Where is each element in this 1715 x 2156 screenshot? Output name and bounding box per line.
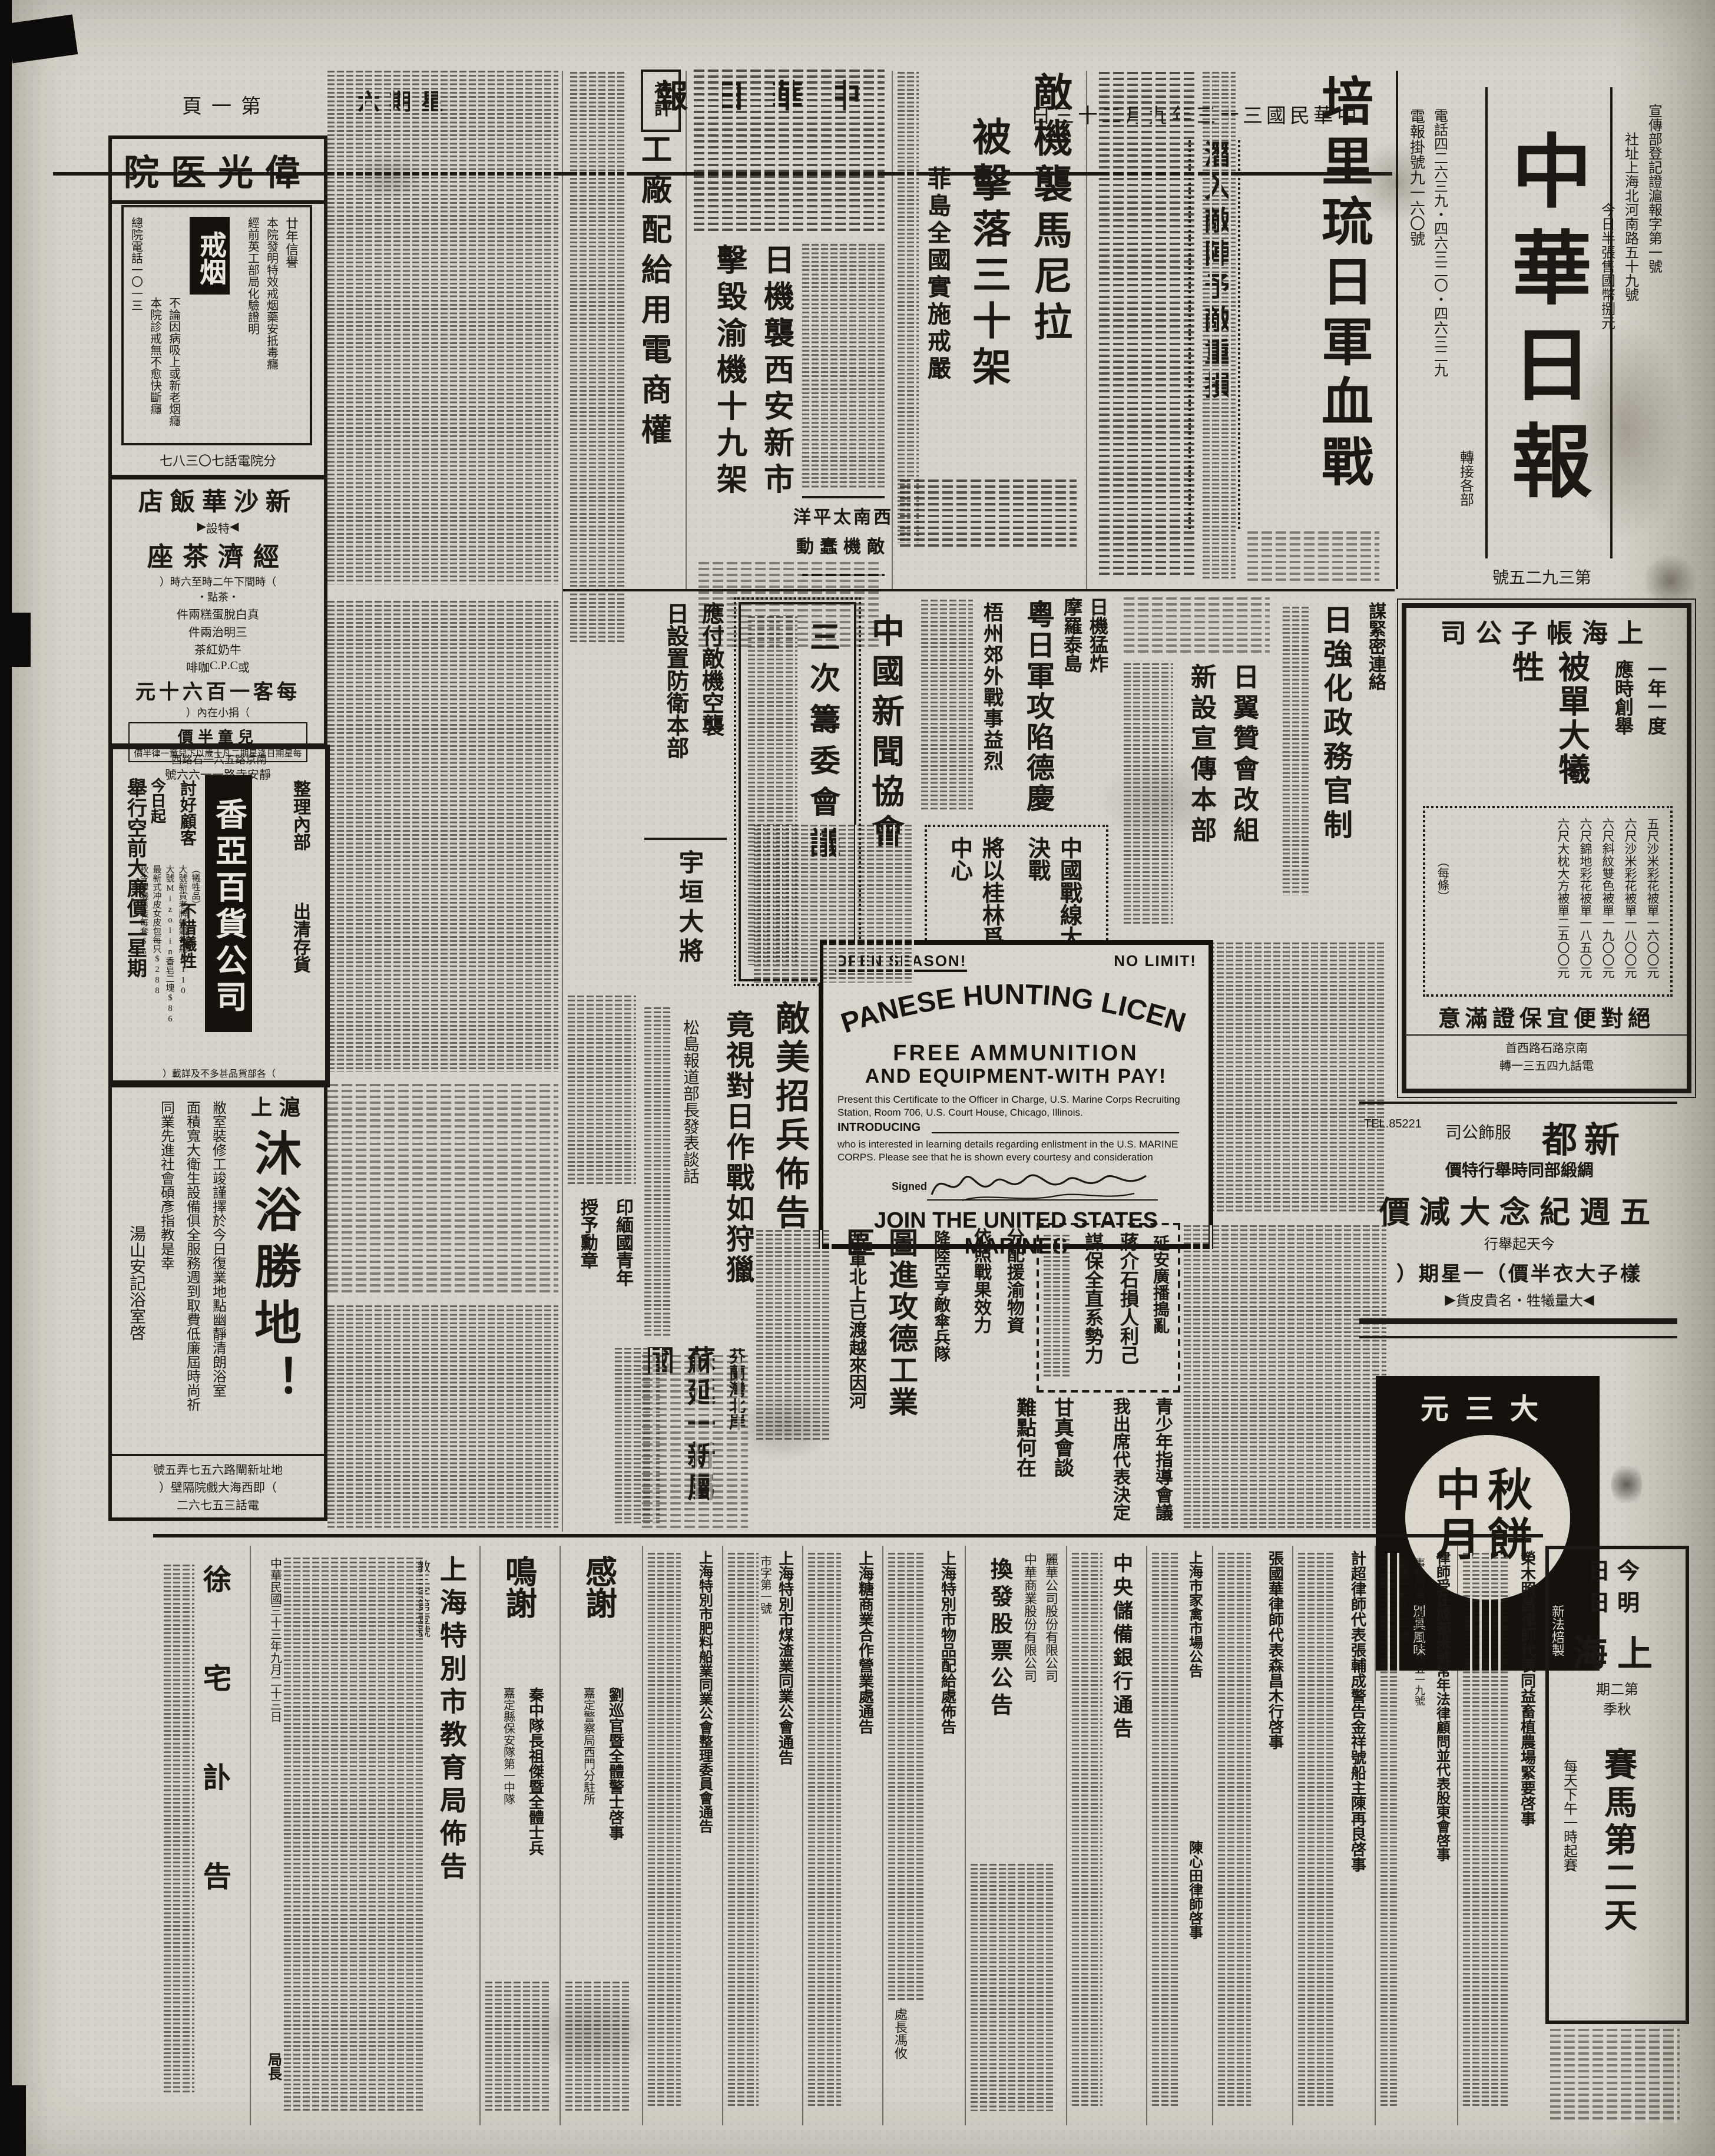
notice-title: 計超律師代表張輔成警告金祥號船主陳再良啓事 [1346, 1550, 1369, 2114]
notice-central-bank: 中央儲備銀行通告 [1070, 1546, 1143, 2123]
body-text-texture [327, 601, 558, 1072]
body-text-texture [1203, 72, 1236, 578]
headline-2: 擊毀渝機十九架 [708, 244, 751, 553]
menu-label: ・茶點・ [112, 589, 324, 604]
article-gandhi: 甘真會談 難點何在 [1004, 1395, 1079, 1532]
company-1: 麗華公司股份有限公司 [1041, 1553, 1060, 1859]
ad-line1: 綢緞部同時舉行特價 [1366, 1158, 1673, 1182]
introducing-label: INTRODUCING [837, 1122, 921, 1135]
col-rule [802, 1546, 803, 2125]
item: 大號新貨老牌蜂霜每瓶$110 [177, 865, 190, 1049]
kicker-line1: 西南太平洋 [802, 504, 885, 529]
article-supplies: 分配援渝物資 依照戰果效力 [961, 1225, 1029, 1385]
body-text-texture [1044, 1235, 1070, 1378]
body-text-texture [648, 1553, 681, 2107]
location: 南京路五六一石路西 [113, 752, 325, 767]
headline-2: 依照戰果效力 [969, 1228, 994, 1381]
ad-title: 沐浴勝地！ [239, 1129, 307, 1423]
body-text-texture [900, 480, 1077, 548]
price: 每客一百六十元 [112, 675, 324, 705]
col-rule [479, 1546, 481, 2125]
notice-thanks-militia: 鳴謝 嘉定縣保安隊第一中隊 秦中隊長祖傑暨全體士兵 [483, 1546, 556, 2123]
clearance-2: 出清存貨 [289, 902, 313, 1020]
store-note: （各部貨品甚多不及詳載） [113, 1067, 325, 1080]
day-2: 明日 [1549, 1586, 1686, 1618]
headline: 粵日軍攻陷德慶 [1017, 600, 1058, 814]
body-text-texture [642, 1355, 748, 1529]
special-label: ◀特設▶ [112, 518, 324, 536]
headline-2: 被擊落三十架 [959, 117, 1015, 452]
section-rule [563, 589, 1395, 591]
big-line: 被單大犧牲 [1503, 650, 1595, 803]
body-text-texture [754, 825, 914, 983]
double-rule [1359, 1318, 1677, 1338]
body-text-texture [921, 600, 973, 812]
notice-coal: 上海特別市煤渣業同業公會通告 市字第一號 [726, 1546, 799, 2123]
notice-title: 張國華律師代表森昌木行啓事 [1264, 1550, 1286, 2045]
body-1: 敝室裝修工竣謹擇於今日復業地點幽靜清朗浴室 [210, 1100, 230, 1442]
season: 秋季 [1549, 1699, 1686, 1719]
body-3: 同業先進社會碩彥指教是幸 [158, 1100, 178, 1442]
address-lines: 地址新閘路六五七弄五號 （即西海大戲院隔壁） 電話三五七六二 [112, 1454, 324, 1513]
price-box: 五尺沙米彩花被單一六〇〇元 六尺沙米彩花被單一八〇〇元 六尺斜紋雙色被單一九〇〇… [1423, 806, 1673, 997]
item: 秋令嗶嘰男裝每套$650 [138, 865, 151, 1049]
notice-title: 上海糖商業合作營業處通告 [854, 1550, 876, 1939]
product-name: 戒烟 [190, 217, 230, 295]
ad-title: 上海帳子公司 [1406, 613, 1687, 650]
time-note: （時間下午二時至六時） [112, 574, 324, 589]
headline: 培里琉日軍血戰 [1304, 74, 1379, 522]
ad-horse-racing: 今日 明日 上海 第二期 秋季 賽馬第二天 每天下午一時起賽 [1545, 1546, 1689, 2024]
body-text-texture [756, 1230, 832, 1442]
body-text-texture [327, 1084, 558, 1296]
masthead: 電報掛號九一六〇號 電話四二六三九・四六三二〇・四六三二九 轉接各部 中華日報 … [1396, 61, 1684, 597]
col-rule [1457, 1546, 1458, 2125]
body-text-texture [971, 1864, 1055, 2111]
headline-2: 日設置防衛本部 [660, 602, 691, 826]
col-rule [250, 1546, 251, 2125]
article-gov-reform: 謀緊密連絡 日強化政務官制 [1278, 595, 1393, 907]
thanks-title: 感謝 [576, 1555, 622, 1673]
headline-1: 青少年指導會議 [1151, 1397, 1176, 1529]
editorial-title: 工廠配給用電商權 [633, 133, 676, 534]
column-rule [686, 71, 687, 589]
article-manila: 敵機襲馬尼拉 被擊落三十架 菲島全國實施戒嚴 [895, 65, 1084, 554]
each-label: （每條） [1432, 855, 1450, 950]
ad-line5: ◀大量犧牲・名貴皮貨▶ [1366, 1290, 1673, 1310]
term: 第二期 [1549, 1679, 1686, 1699]
notice-rongmu: 榮木照昌律師代表同益畜植農場緊要啓事 [1461, 1546, 1541, 2123]
masthead-telegraph: 電報掛號九一六〇號 [1405, 108, 1428, 462]
body-text-texture [164, 1565, 194, 2095]
newspaper-sheet: 第一頁 星期六 中華日報 中華民國三十三年九月二十三日 電報掛號九一六〇號 電話… [0, 0, 1715, 2156]
notice-title: 徐宅訃告 [193, 1565, 234, 2071]
item: 大號Mizolin香皂二塊$86 [164, 865, 177, 1049]
chen-title: 陳心田律師啓事 [1186, 1840, 1206, 2076]
ad-title: 偉光医院 [112, 144, 324, 204]
kicker-line2: 敵機蠢動 [802, 534, 885, 558]
subhead: 梧州郊外戰事益烈 [976, 602, 1006, 812]
body-text-texture [1283, 607, 1309, 895]
kicker: 菲島全國實施戒嚴 [920, 166, 954, 484]
body-text-texture [485, 1982, 549, 2111]
ugaki-headline: 宇垣大將 [673, 849, 708, 979]
ad-line1: FREE AMMUNITION [823, 1041, 1209, 1067]
article-youth: 青少年指導會議 我出席代表決定 [1091, 1395, 1178, 1532]
ad-line4: 樣子大衣半價（一星期） [1366, 1257, 1673, 1287]
price-item: 六尺錦地彩花被單一八五〇元 [1574, 818, 1596, 983]
ad-xinshahua-restaurant: 新沙華飯店 ◀特設▶ 經濟茶座 （時間下午二時至六時） ・茶點・ 真白脫蛋糕兩件… [108, 476, 327, 747]
col-rule [642, 1546, 643, 2125]
signature: 處長馮攸 [890, 2008, 909, 2114]
body-text-texture [1550, 2029, 1680, 2123]
headline: 日強化政務官制 [1313, 604, 1356, 887]
body-text-texture [802, 244, 885, 489]
price-item: 六尺沙米彩花被單一八〇〇元 [1618, 818, 1641, 983]
newspaper-scan: 第一頁 星期六 中華日報 中華民國三十三年九月二十三日 電報掛號九一六〇號 電話… [0, 0, 1715, 2156]
price-item: 五尺沙米彩花被單一六〇〇元 [1641, 818, 1663, 983]
article-yokusan: 日翼贊會改組 新設宣傳本部 [1119, 595, 1274, 931]
article-peleliu: 培里琉日軍血戰 潛入敵陣予敵重損 [1090, 65, 1393, 589]
body-text-texture [1218, 1553, 1251, 2107]
masthead-issue-no: 第三九二五號 [1481, 566, 1603, 589]
col-rule [1066, 1546, 1067, 2125]
film-mark-corner [7, 15, 78, 64]
ad-weiguang-hospital: 偉光医院 戒烟 廿年信譽 本院發明特效戒烟藥安抵毒癮 經前英工部局化驗證明 不論… [108, 135, 327, 478]
notice-education-bureau: 上海特別市教育局佈告 教三字第壹號 中華民國三十三年九月二十三日 局長 [253, 1546, 475, 2123]
notice-title: 上海特別市物品配給處佈告 [936, 1550, 959, 1939]
col-rule [1212, 1546, 1213, 2125]
morotai-line2: 摩羅泰島 [1055, 597, 1084, 692]
product-name: 經濟茶座 [112, 536, 324, 574]
editorial-body-texture [327, 71, 558, 584]
body-text-texture [1463, 1553, 1508, 2107]
notice-sugar: 上海糖商業合作營業處通告 [806, 1546, 879, 2123]
notice-sign: 局長 [265, 2052, 285, 2111]
ad-title: 新都 [1531, 1111, 1637, 1163]
notice-poultry-chen: 上海市家禽市場公告 陳心田律師啓事 [1150, 1546, 1209, 2123]
ad-xindu-fashion: 新都 服飾公司 TEL.85221 綢緞部同時舉行特價 五週紀念大減價 今天起舉… [1355, 1102, 1684, 1368]
notice-jichao-lawyer: 計超律師代表張輔成警告金祥號船主陳再良啓事 [1296, 1546, 1371, 2123]
notice-chengdu-lawyer: 律師受任成都米號常年法律顧問並代表股東會啓事 事務所南京路哈同大樓五一九號 電話… [1378, 1546, 1456, 2123]
notice-thanks-police: 感謝 嘉定警察局西門分駐所 劉巡官暨全體警士啓事 [563, 1546, 638, 2123]
col-rule [559, 1546, 561, 2125]
company-2: 中華商業股份有限公司 [1020, 1553, 1039, 1859]
body-text-texture [565, 1982, 631, 2111]
inner-box: 戒烟 廿年信譽 本院發明特效戒烟藥安抵毒癮 經前英工部局化驗證明 不論因病吸上或… [121, 205, 312, 445]
col-rule [1292, 1546, 1293, 2125]
morotai-line1: 日機猛炸 [1081, 597, 1110, 692]
price-items: 五尺沙米彩花被單一六〇〇元 六尺沙米彩花被單一八〇〇元 六尺斜紋雙色被單一九〇〇… [1465, 818, 1663, 983]
body-text-texture [327, 1305, 558, 1529]
headline-1: 日翼贊會改組 [1225, 663, 1263, 899]
ad-line3: 今天起舉行 [1366, 1234, 1673, 1254]
ad-bath-house: 滬上 沐浴勝地！ 敝室裝修工竣謹擇於今日復業地點幽靜清朗浴室 面積寬大衛生設備俱… [108, 1080, 327, 1521]
article-arnhem: 降陸亞亨敵傘兵隊 圖進攻德工業區 英軍北上已渡越來因河 [754, 1225, 954, 1449]
masthead-phones: 電話四二六三九・四六三二〇・四六三二九 [1431, 108, 1451, 556]
price-item: 六尺大枕大方被單二五〇〇元 [1551, 818, 1574, 983]
body-text-texture [644, 1007, 670, 1337]
column-rule [562, 71, 563, 1532]
trust-line: 廿年信譽 [282, 217, 300, 299]
rule [644, 838, 727, 840]
body-text-texture [1124, 597, 1270, 654]
headline-2: 我出席代表決定 [1108, 1397, 1133, 1529]
menu-1: 真白脫蛋糕兩件 [112, 604, 324, 622]
body-text-texture [1152, 1553, 1178, 2107]
clearance-1: 整理內部 [289, 780, 313, 898]
price-note: （捐小在內） [112, 705, 324, 720]
cat-1: （犧牲品） [190, 865, 203, 1049]
item: 最新式冲皮女皮包每只$288 [151, 865, 164, 1049]
kicker: 延安廣播搗亂 [1147, 1235, 1171, 1376]
racing-time: 每天下午一時起賽 [1561, 1759, 1581, 1959]
headline-2: 授予勳章 [576, 1198, 601, 1304]
film-edge-left [0, 0, 12, 2156]
notice-date: 中華民國三十三年九月二十三日 [265, 1558, 283, 1911]
headline-2: 新設宣傳本部 [1183, 663, 1220, 899]
notice-obituary: 徐宅訃告 [159, 1546, 244, 2123]
notice-fertilizer: 上海特別市肥料船業同業公會整理委員會通告 [645, 1546, 719, 2123]
masthead-phone-note: 轉接各部 [1457, 450, 1477, 568]
col-rule [882, 1546, 883, 2125]
article-deqing: 日機猛炸 摩羅泰島 粵日軍攻陷德慶 梧州郊外戰事益烈 [919, 595, 1114, 819]
notice-title: 榮木照昌律師代表同益畜植農場緊要啓事 [1516, 1550, 1538, 2104]
headline: 日機襲西安新市 [755, 244, 799, 553]
body-text-texture [1124, 663, 1173, 925]
notice-title: 律師受任成都米號常年法律顧問並代表股東會啓事 [1433, 1550, 1454, 2114]
thanks-name: 秦中隊長祖傑暨全體士兵 [524, 1687, 547, 1970]
office-line: 事務所南京路哈同大樓五一九號 [1412, 1558, 1428, 1946]
film-mark-tab [0, 613, 31, 667]
notice-title: 上海特別市煤渣業同業公會通告 [774, 1550, 796, 1963]
addr-1: 地址新閘路六五七弄五號 [112, 1460, 324, 1477]
kids-label: 兒童半價 [132, 725, 304, 747]
col-rule [965, 1546, 966, 2125]
menu-3: 牛奶紅茶 [112, 640, 324, 657]
editorial-label: 社評 [641, 70, 681, 132]
addr-3: 電話三五七六二 [112, 1495, 324, 1513]
ad-xiangya-store: 南京路五六一石路西 整理內部 出清存貨 香亞百貨公司 討好顧客 不惜犧牲 今日起… [108, 745, 330, 1087]
menu-4: 或C.P.C咖啡 [112, 657, 324, 675]
body-text-texture [808, 1553, 841, 2107]
page-number: 第一頁 [177, 90, 276, 119]
headline-2: 謀保全直系勢力 [1077, 1232, 1105, 1381]
slogan: 絕對便宜保證滿意 [1406, 1001, 1687, 1033]
notice-title: 換發股票公告 [984, 1558, 1015, 1840]
body-text-texture [568, 996, 636, 1184]
col-rule [1375, 1546, 1376, 2125]
headline-1: 甘真會談 [1047, 1397, 1077, 1515]
kicker-2: 應時創舉 [1607, 660, 1635, 789]
body-text-texture [1380, 1553, 1399, 2107]
thanks-sub: 嘉定警察局西門分駐所 [578, 1687, 596, 1899]
col-rule [722, 1546, 723, 2125]
ad-para2: who is interested in learning details re… [837, 1138, 1191, 1163]
ad-tel: TEL.85221 [1364, 1118, 1422, 1131]
price-item: 六尺斜紋雙色被單一九〇〇元 [1596, 818, 1618, 983]
headline: 敵機襲馬尼拉 [1020, 72, 1077, 408]
body-2: 面積寬大衛生設備俱全服務週到取費低廉屆時尚祈 [184, 1100, 204, 1442]
headline-2: 竟視對日作戰如狩獵 [716, 1010, 757, 1328]
items-flow: （犧牲品） 大號新貨老牌蜂霜每瓶$110 大號Mizolin香皂二塊$86 最新… [146, 865, 203, 1049]
stain [1611, 1461, 1642, 1508]
ad-line2: 經前英工部局化驗證明 [243, 217, 260, 429]
introducing-line [932, 1132, 1179, 1133]
english-marines-ad: OPEN SEASON! NO LIMIT! JAPANESE HUNTING … [819, 940, 1213, 1249]
body-text-texture [284, 1558, 425, 2111]
signature-rule [927, 1199, 1158, 1201]
film-mark-bottom [5, 2085, 26, 2156]
body-text-texture [728, 1553, 759, 2107]
body-text-texture [694, 70, 885, 234]
kicker-1: 一年一度 [1640, 660, 1668, 789]
article-xian: 日機襲西安新市 擊毀渝機十九架 西南太平洋 敵機蠢動 [689, 65, 892, 654]
phone: 電話九四五三一轉 [1406, 1056, 1687, 1073]
masthead-rule [1396, 71, 1398, 589]
ad-zhangzi-bedding: 上海帳子公司 一年一度 應時創舉 被單大犧牲 五尺沙米彩花被單一六〇〇元 六尺沙… [1402, 603, 1691, 1093]
kicker: 謀緊密連絡 [1364, 602, 1389, 743]
headline-1: 應付敵機空襲 [695, 602, 727, 826]
notice-stock-exchange: 麗華公司股份有限公司 中華商業股份有限公司 換發股票公告 [968, 1546, 1062, 2123]
column-rule [1086, 71, 1087, 589]
notice-title: 上海特別市肥料船業同業公會整理委員會通告 [696, 1550, 716, 2114]
headline-1: 分配援渝物資 [1002, 1228, 1027, 1381]
editorial-block: 社評 工廠配給用電商權 [565, 65, 683, 589]
kicker: 滬上 [244, 1091, 314, 1122]
masthead-address: 社址上海北河南路五十九號 [1622, 132, 1642, 521]
thanks-name: 劉巡官暨全體警士啓事 [604, 1687, 627, 1970]
ad-line4: 本院診戒無不愈快斷癮 [145, 297, 163, 436]
thanks-title: 鳴謝 [496, 1555, 542, 1673]
signature-scribble [927, 1164, 1151, 1204]
body-text-texture [570, 72, 627, 644]
brand: 大三元 [1376, 1385, 1600, 1427]
phone-1: 總院電話一〇一三 [126, 217, 144, 429]
ad-title: 新沙華飯店 [112, 483, 324, 518]
store-name: 香亞百貨公司 [205, 775, 252, 1032]
article-yanan-box: 延安廣播搗亂 蔣介石損人利己 謀保全直系勢力 [1037, 1223, 1180, 1393]
poultry-title: 上海市家禽市場公告 [1186, 1550, 1206, 1821]
notice-zhangguohua-lawyer: 張國華律師代表森昌木行啓事 [1216, 1546, 1289, 2123]
phone-2: 分院電話七〇三八七 [112, 451, 324, 470]
menu-2: 三明治兩件 [112, 622, 324, 640]
address: 南京路石路西首 [1406, 1034, 1687, 1056]
col-rule [1146, 1546, 1147, 2125]
headline-1: 蔣介石損人利己 [1112, 1232, 1140, 1381]
body-text-texture [1072, 1553, 1102, 2107]
body-text-texture [888, 1553, 923, 2000]
kicker: 降陸亞亨敵傘兵隊 [928, 1230, 952, 1418]
body-text-texture [898, 72, 919, 543]
masthead-registration: 宣傳部登記證滬報字第一號 [1646, 104, 1666, 492]
subhead: 英軍北上已渡越來因河 [845, 1232, 869, 1442]
ad-line1: 本院發明特效戒烟藥安抵毒癮 [261, 217, 279, 429]
signed-label: Signed [892, 1180, 927, 1192]
notice-rations: 上海特別市物品配給處佈告 處長馮攸 [886, 1546, 961, 2123]
masthead-price-note: 今日半張售國幣捌元 [1598, 203, 1618, 556]
bottom-band-rule [153, 1534, 1543, 1537]
rule [1359, 1102, 1677, 1104]
ad-title-2: 服飾公司 [1437, 1120, 1519, 1144]
signature: 湯山安記浴室啓 [124, 1225, 147, 1437]
subhead-note: 松島報道部長發表談話 [677, 1019, 701, 1314]
body-text-texture [1247, 531, 1379, 581]
headline-2: 難點何在 [1009, 1397, 1039, 1515]
body-text-texture [1099, 72, 1198, 578]
racing-title: 賽馬第二天 [1594, 1747, 1641, 1947]
masthead-title: 中華日報 [1485, 87, 1613, 558]
day-1: 今日 [1549, 1554, 1686, 1586]
notice-title: 上海特別市教育局佈告 [430, 1555, 470, 2026]
body-text-texture [1298, 1553, 1333, 2107]
addr-2: （即西海大戲院隔壁） [112, 1477, 324, 1495]
city: 上海 [1549, 1625, 1686, 1676]
headline-1: 印緬國青年 [611, 1198, 636, 1330]
notice-title: 中央儲備銀行通告 [1106, 1553, 1135, 1883]
article-medal: 印緬國青年 授予勳章 [565, 1196, 638, 1335]
ad-line2: 五週紀念大減價 [1366, 1189, 1673, 1232]
thanks-sub: 嘉定縣保安隊第一中隊 [498, 1687, 516, 1899]
article-air-defense: 應付敵機空襲 日設置防衛本部 宇垣大將 [642, 595, 731, 984]
ad-para1: Present this Certificate to the Officer … [837, 1093, 1191, 1119]
ad-line2: AND EQUIPMENT-WITH PAY! [823, 1065, 1209, 1089]
ad-line3: 不論因病吸上或新老烟癮 [164, 297, 181, 436]
